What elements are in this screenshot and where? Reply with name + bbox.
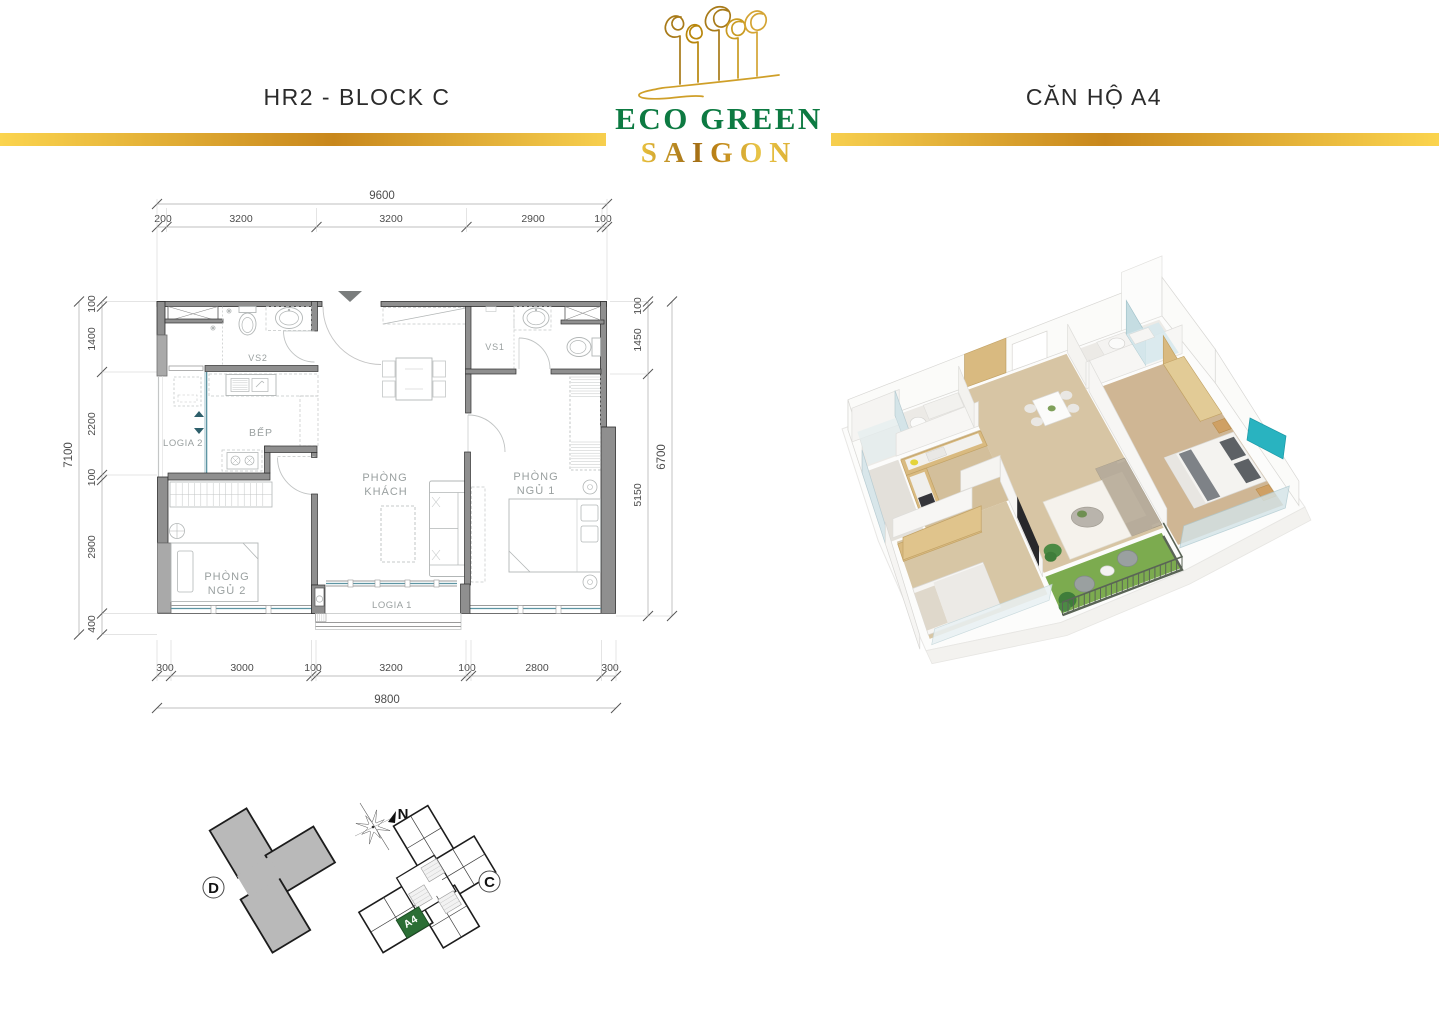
svg-text:100: 100 bbox=[458, 662, 476, 674]
svg-text:2800: 2800 bbox=[525, 662, 549, 674]
svg-text:1400: 1400 bbox=[86, 327, 98, 351]
svg-text:CĂN HỘ A4: CĂN HỘ A4 bbox=[1026, 83, 1162, 110]
svg-text:7100: 7100 bbox=[63, 442, 75, 468]
svg-text:3000: 3000 bbox=[230, 662, 254, 674]
svg-text:2900: 2900 bbox=[86, 535, 98, 559]
svg-text:100: 100 bbox=[594, 213, 612, 225]
svg-text:2200: 2200 bbox=[86, 412, 98, 436]
svg-text:PHÒNG: PHÒNG bbox=[204, 570, 249, 583]
svg-text:VS1: VS1 bbox=[485, 342, 504, 352]
svg-text:KHÁCH: KHÁCH bbox=[364, 485, 408, 498]
svg-text:NGỦ 1: NGỦ 1 bbox=[517, 484, 556, 497]
svg-text:3200: 3200 bbox=[229, 213, 253, 225]
svg-text:VS2: VS2 bbox=[248, 353, 267, 363]
svg-text:1450: 1450 bbox=[632, 328, 644, 352]
svg-text:100: 100 bbox=[304, 662, 322, 674]
svg-text:NGỦ 2: NGỦ 2 bbox=[208, 584, 247, 597]
svg-text:6700: 6700 bbox=[656, 444, 668, 470]
svg-text:300: 300 bbox=[156, 662, 174, 674]
svg-text:100: 100 bbox=[86, 295, 98, 313]
svg-text:300: 300 bbox=[601, 662, 619, 674]
svg-text:100: 100 bbox=[86, 469, 98, 487]
svg-text:2900: 2900 bbox=[521, 213, 545, 225]
svg-text:LOGIA 1: LOGIA 1 bbox=[372, 600, 412, 611]
svg-text:3200: 3200 bbox=[379, 662, 403, 674]
svg-text:HR2 - BLOCK C: HR2 - BLOCK C bbox=[264, 84, 451, 110]
svg-text:5150: 5150 bbox=[632, 483, 644, 507]
svg-text:BẾP: BẾP bbox=[249, 426, 273, 439]
svg-text:C: C bbox=[484, 874, 495, 891]
svg-text:ECO GREEN: ECO GREEN bbox=[615, 101, 823, 136]
svg-text:400: 400 bbox=[86, 615, 98, 633]
svg-text:PHÒNG: PHÒNG bbox=[513, 470, 558, 483]
svg-text:9800: 9800 bbox=[374, 694, 400, 706]
svg-text:PHÒNG: PHÒNG bbox=[362, 471, 407, 484]
svg-text:LOGIA 2: LOGIA 2 bbox=[163, 438, 203, 449]
svg-text:3200: 3200 bbox=[379, 213, 403, 225]
svg-text:9600: 9600 bbox=[369, 190, 395, 202]
svg-text:D: D bbox=[208, 880, 219, 897]
svg-text:SAIGON: SAIGON bbox=[641, 137, 797, 169]
svg-text:100: 100 bbox=[632, 297, 644, 315]
